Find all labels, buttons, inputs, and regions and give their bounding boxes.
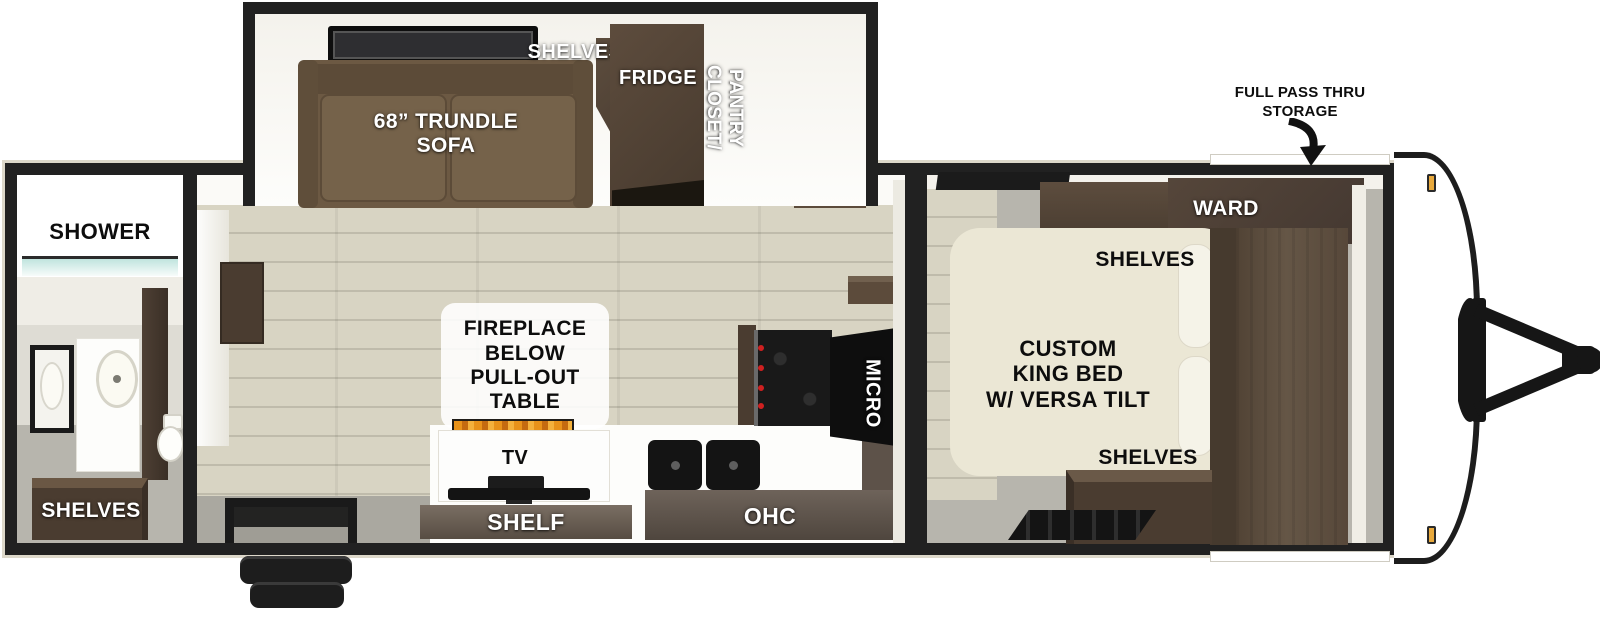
trundle-sofa-label: 68” TRUNDLE SOFA [320,98,572,170]
mirror-reflection [40,362,64,410]
tv-label: TV [480,446,550,472]
entry-step-lower [250,582,344,608]
sink-drain [113,375,121,383]
sofa-backrest [308,64,583,94]
bedroom-front-wall-face [1352,185,1366,543]
floorplan-canvas: SHOWER SHELVES 68” TRUNDLE SOFA SHELVES … [0,0,1600,619]
bathroom-shelves-label: SHELVES [32,498,150,524]
storage-arrow-icon [1283,118,1335,168]
king-bed-label: CUSTOM KING BED W/ VERSA TILT [968,328,1168,420]
pass-thru-storage-label: FULL PASS THRU STORAGE [1213,82,1387,122]
sink-drain-right [729,461,738,470]
overhead-cabinet-label: OHC [700,500,840,532]
wardrobe [1236,228,1348,545]
stove-knob [758,365,764,371]
shower-glass [22,256,178,276]
tv-shelf-label: SHELF [420,507,632,537]
stove-knob [758,385,764,391]
bedroom-wall [905,175,927,543]
toilet [157,426,184,462]
entry-step-upper [240,556,352,584]
stove-knob [758,345,764,351]
tv [448,488,590,500]
fridge-label: FRIDGE [612,66,704,92]
sink-drain-left [671,461,680,470]
fireplace-callout-label: FIREPLACE BELOW PULL-OUT TABLE [441,303,609,429]
entry-doorway [225,498,357,543]
bed-shelves-bottom-label: SHELVES [1086,444,1210,472]
shower-label: SHOWER [22,218,178,246]
fridge [610,24,704,206]
stove [754,330,832,426]
tv-stand [506,500,532,504]
clearance-light-bottom [1427,526,1436,544]
floor-vent [1008,510,1156,540]
sofa-arm-left [298,60,318,208]
wardrobe-edge [1210,228,1236,545]
closet-pantry-label: CLOSET/ PANTRY [700,50,748,166]
closet-step [848,276,896,304]
bed-pillow [1178,356,1214,456]
hitch-a-frame-icon [1458,290,1600,430]
interior-door-panel [220,262,264,344]
bed-shelves-top-label: SHELVES [1083,246,1207,274]
bedroom-wall-face [893,180,905,543]
front-cap-floor-strip [1210,551,1390,562]
ward-label: WARD [1178,194,1274,224]
microwave-label: MICRO [853,350,891,436]
clearance-light-top [1427,174,1436,192]
slideout-window [328,26,538,64]
stove-knob [758,403,764,409]
bathroom-wall [183,175,197,543]
